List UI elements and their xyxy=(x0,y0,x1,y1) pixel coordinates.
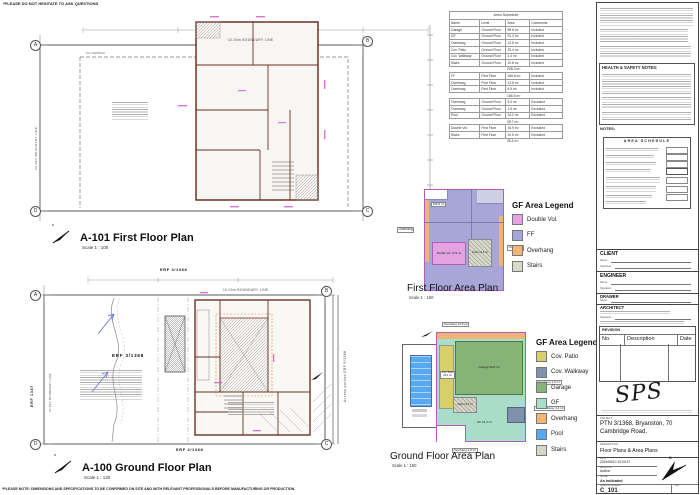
general-notes-block xyxy=(600,46,691,58)
legend-swatch xyxy=(536,429,547,440)
compass-north-icon xyxy=(659,459,689,483)
client-label: CLIENT xyxy=(600,251,618,257)
legend-item: Stairs xyxy=(512,261,592,272)
drawer-name-line xyxy=(611,302,691,303)
ground-floor-area-plan: Garage 59.8 m² Stairs 10.6 m² GF 91.3 m²… xyxy=(402,328,532,446)
first-floor-area-plan-scale: Scale 1 : 150 xyxy=(409,296,433,301)
drawing-number-label: DRAWING NUMBER xyxy=(600,485,621,487)
legend-item: Double Vol. xyxy=(512,214,592,225)
legend-item: Stairs xyxy=(536,445,598,456)
area-schedule: Area Schedule Name Level Area Comments G… xyxy=(449,11,563,144)
title-block-column: HEALTH & SAFETY NOTES: NOTES: AREA SCHED… xyxy=(596,2,699,494)
legend-swatch xyxy=(512,214,523,225)
erf-left-label: ERF 1347 xyxy=(30,385,34,407)
name-label: Name: xyxy=(600,281,608,284)
house-area: Garage 59.8 m² Stairs 10.6 m² GF 91.3 m²… xyxy=(436,332,526,442)
grid-bubble-b: B xyxy=(362,36,373,47)
ff-legend-title: GF Area Legend xyxy=(512,201,592,210)
north-arrow-icon xyxy=(54,458,72,474)
first-floor-plan-drawing xyxy=(28,10,450,260)
general-notes-block xyxy=(600,29,688,43)
grid-bubble-c: C xyxy=(321,439,332,450)
ff-setback-label: 10m SETBACK xyxy=(86,52,105,55)
rev-col-no: No. xyxy=(600,335,625,345)
cov-patio-label: Cov. Patio 29.4 m² xyxy=(440,371,455,379)
legend-swatch xyxy=(536,398,547,409)
wall-line xyxy=(471,190,472,239)
engineer-signature-line xyxy=(615,290,691,291)
legend-item: Garage xyxy=(536,382,598,393)
erf-bottom-label: ERF 2/1368 xyxy=(176,448,203,452)
overhang-strip-right xyxy=(499,216,503,266)
ff-boundary-left-label: 22.35m BOUNDARY LINE xyxy=(35,127,38,170)
description-value: Floor Plans & Area Plans xyxy=(600,448,692,454)
name-label: Name: xyxy=(600,259,608,262)
hs-notes-block xyxy=(602,97,691,109)
ground-floor-plan-title: A-100 Ground Floor Plan xyxy=(82,462,212,474)
north-letter: N xyxy=(52,224,54,227)
pool-step xyxy=(412,414,427,417)
col-area: Area xyxy=(506,20,530,27)
legend-swatch xyxy=(536,445,547,456)
schedule-row: StairsGround Floor 10.6 m²Included xyxy=(450,60,563,67)
ground-floor-area-plan-title: Ground Floor Area Plan xyxy=(390,451,495,462)
roof-notch xyxy=(425,190,448,200)
architect-signature-line xyxy=(615,319,691,320)
signature-label: Signature: xyxy=(600,265,612,268)
health-safety-box: HEALTH & SAFETY NOTES: xyxy=(599,63,695,125)
rev-col-desc: Description xyxy=(625,335,678,345)
ff-area-label: 166.8 m² xyxy=(431,202,446,207)
subtotal-row: 26.4 m² xyxy=(450,138,563,144)
first-floor-area-plan-group: 166.8 m² Double Vol. 15.9 m² Stairs 10.5… xyxy=(395,185,595,310)
pool-terrace-outline xyxy=(402,344,438,428)
signature-label: Signature: xyxy=(600,316,612,319)
stairs-area: Stairs 10.6 m² xyxy=(453,397,477,413)
engineer-name-line xyxy=(611,284,691,285)
ground-floor-plan-panel: ERF 4/1368 10.00m BOUNDARY LINE ERF 1347… xyxy=(28,262,450,492)
name-label: Name: xyxy=(600,299,608,302)
overhang-top-label: Overhang 12.8 m² xyxy=(442,322,469,327)
schedule-row: GFGround Floor 91.3 m²Included xyxy=(450,33,563,40)
engineer-label: ENGINEER xyxy=(600,273,626,279)
ff-area-legend: GF Area Legend Double Vol. FF xyxy=(512,201,592,276)
ground-floor-area-plan-group: Garage 59.8 m² Stairs 10.6 m² GF 91.3 m²… xyxy=(388,320,600,480)
col-comments: Comments xyxy=(530,20,563,27)
legend-item: Overhang xyxy=(512,245,592,256)
legend-swatch xyxy=(512,245,523,256)
legend-item: Overhang xyxy=(536,413,598,424)
schedule-row: OverhangGround Floor 12.8 m²Included xyxy=(450,40,563,47)
grid-bubble-a: A xyxy=(30,290,41,301)
gf-boundary-top-label: 10.00m BOUNDARY LINE xyxy=(223,289,268,293)
legend-item: Cov. Walkway xyxy=(536,367,598,378)
architect-name-block xyxy=(600,311,670,315)
rev-label: REV xyxy=(675,485,680,487)
legend-swatch xyxy=(536,413,547,424)
sacap-reg-block xyxy=(600,321,684,324)
erf-site-label: ERF 3/1368 xyxy=(112,354,144,359)
col-level: Level xyxy=(480,20,506,27)
description-label: DESCRIPTION xyxy=(600,443,618,446)
health-safety-title: HEALTH & SAFETY NOTES: xyxy=(602,66,657,71)
date-value: 2024/06/10 10:00:47 xyxy=(600,461,630,465)
house-cutout xyxy=(437,425,466,442)
client-signature-line xyxy=(615,268,691,269)
area-schedule-table: Area Schedule Name Level Area Comments G… xyxy=(449,11,563,144)
site-note-block xyxy=(228,402,274,416)
grid-bubble-b: B xyxy=(321,286,332,297)
drainage-note-block xyxy=(80,370,142,400)
first-floor-area-plan-title: First Floor Area Plan xyxy=(407,283,498,294)
ground-floor-area-plan-scale: Scale 1 : 150 xyxy=(392,464,416,469)
first-floor-plan-title: A-101 First Floor Plan xyxy=(80,232,194,244)
bottom-note: *PLEASE NOTE: DIMENSIONS AND SPECIFICATI… xyxy=(2,488,295,492)
schedule-row: Cov. PatioGround Floor 29.4 m²Included xyxy=(450,46,563,53)
roof-patch xyxy=(477,190,503,204)
scale-label: SCALE xyxy=(600,476,608,478)
schedule-row: GarageGround Floor 59.8 m²Included xyxy=(450,26,563,33)
logo-address-block xyxy=(602,410,692,413)
pool-step xyxy=(412,409,427,412)
mini-north-arrow-icon xyxy=(420,330,434,338)
schedule-row: OverhangGround Floor 1.5 m²Excluded xyxy=(450,105,563,112)
logo-box: SPS xyxy=(599,382,694,414)
drawnby-value: Author xyxy=(600,470,610,474)
overhang-strip-left xyxy=(425,200,429,262)
stairs-area: Stairs 10.5 m² xyxy=(468,239,492,267)
gf-legend-title: GF Area Legend xyxy=(536,338,598,347)
sps-logo: SPS xyxy=(614,380,664,409)
north-letter: N xyxy=(54,454,56,457)
garage-area: Garage 59.8 m² xyxy=(455,341,523,395)
first-floor-area-plan: 166.8 m² Double Vol. 15.9 m² Stairs 10.5… xyxy=(424,189,504,291)
revision-box: REVISION No. Description Date xyxy=(599,326,696,382)
schedule-row: OverhangGround Floor 3.0 m²Excluded xyxy=(450,99,563,106)
ff-boundary-top-label: 10.00m BOUNDARY LINE xyxy=(228,39,273,43)
legend-swatch xyxy=(512,261,523,272)
pool xyxy=(410,355,432,407)
project-value: PTN 3/1368, Bryanston, 70 Cambridge Road… xyxy=(600,421,692,437)
schedule-row: StairsFirst Floor 10.5 m²Excluded xyxy=(450,132,563,139)
gf-area-legend: GF Area Legend Cov. Patio Cov. Walkway xyxy=(536,338,598,460)
legend-swatch xyxy=(512,230,523,241)
client-name-line xyxy=(611,262,691,263)
first-floor-plan-scale: Scale 1 : 100 xyxy=(82,246,108,251)
overhang-left-label: Overhang xyxy=(397,227,414,233)
erf-access-label: Access portion ERF 5/1368 xyxy=(344,351,348,402)
hs-notes-block xyxy=(602,112,691,121)
legend-swatch xyxy=(536,382,547,393)
wall-line xyxy=(425,222,503,223)
col-name: Name xyxy=(450,20,480,27)
project-label: PROJECT xyxy=(600,417,612,420)
drainage-note-block xyxy=(112,102,148,120)
drawing-sheet: *PLEASE DO NOT HESITATE TO ASK QUESTIONS xyxy=(0,0,700,495)
legend-item: Cov. Patio xyxy=(536,351,598,362)
top-note: *PLEASE DO NOT HESITATE TO ASK QUESTIONS xyxy=(3,2,98,6)
erf-top-label: ERF 4/1368 xyxy=(160,268,187,272)
revision-header-row: No. Description Date xyxy=(600,334,695,346)
architect-label: ARCHITECT xyxy=(600,305,624,310)
rev-col-date: Date xyxy=(678,335,695,345)
north-arrow-icon xyxy=(52,228,70,244)
schedule-row: FFFirst Floor 166.8 m²Included xyxy=(450,73,563,80)
signature-label: Signature: xyxy=(600,287,612,290)
grid-bubble-c: C xyxy=(362,206,373,217)
schedule-row: Cov. WalkwayGround Floor 4.4 m²Included xyxy=(450,53,563,60)
grid-bubble-d: D xyxy=(30,439,41,450)
drawing-number-value: C_101 xyxy=(600,488,618,495)
legend-item: FF xyxy=(512,230,592,241)
grid-bubble-a: A xyxy=(30,40,41,51)
overhang-strip-top xyxy=(437,333,525,339)
revision-label: REVISION xyxy=(602,328,620,332)
notes-label: NOTES: xyxy=(600,127,615,131)
cov-walkway-area xyxy=(507,407,525,423)
legend-item: GF xyxy=(536,398,598,409)
gf-boundary-left-label: 22.35m BOUNDARY LINE xyxy=(49,373,52,412)
grid-bubble-d: D xyxy=(30,206,41,217)
schedule-title: Area Schedule xyxy=(450,12,563,20)
area-summary-box: AREA SCHEDULE xyxy=(603,137,691,209)
legend-item: Pool xyxy=(536,429,598,440)
schedule-row: Double Vol.First Floor 15.9 m²Excluded xyxy=(450,125,563,132)
double-vol-area: Double Vol. 15.9 m² xyxy=(432,242,466,265)
ground-floor-plan-scale: Scale 1 : 130 xyxy=(84,476,110,481)
legend-swatch xyxy=(536,367,547,378)
gf-area-label: GF 91.3 m² xyxy=(477,421,492,424)
scale-value: As indicated xyxy=(600,479,623,483)
schedule-row: PoolGround Floor 24.2 m²Excluded xyxy=(450,112,563,119)
area-summary-title: AREA SCHEDULE xyxy=(604,140,690,144)
legend-swatch xyxy=(536,351,547,362)
general-notes-block xyxy=(600,8,693,26)
area-summary-rows xyxy=(606,147,688,205)
schedule-row: OverhangFirst Floor 12.8 m²Included xyxy=(450,79,563,86)
hs-notes-block xyxy=(602,74,691,94)
schedule-row: OverhangFirst Floor 6.9 m²Included xyxy=(450,86,563,93)
first-floor-plan-panel: 10.00m BOUNDARY LINE 22.35m BOUNDARY LIN… xyxy=(28,10,450,260)
